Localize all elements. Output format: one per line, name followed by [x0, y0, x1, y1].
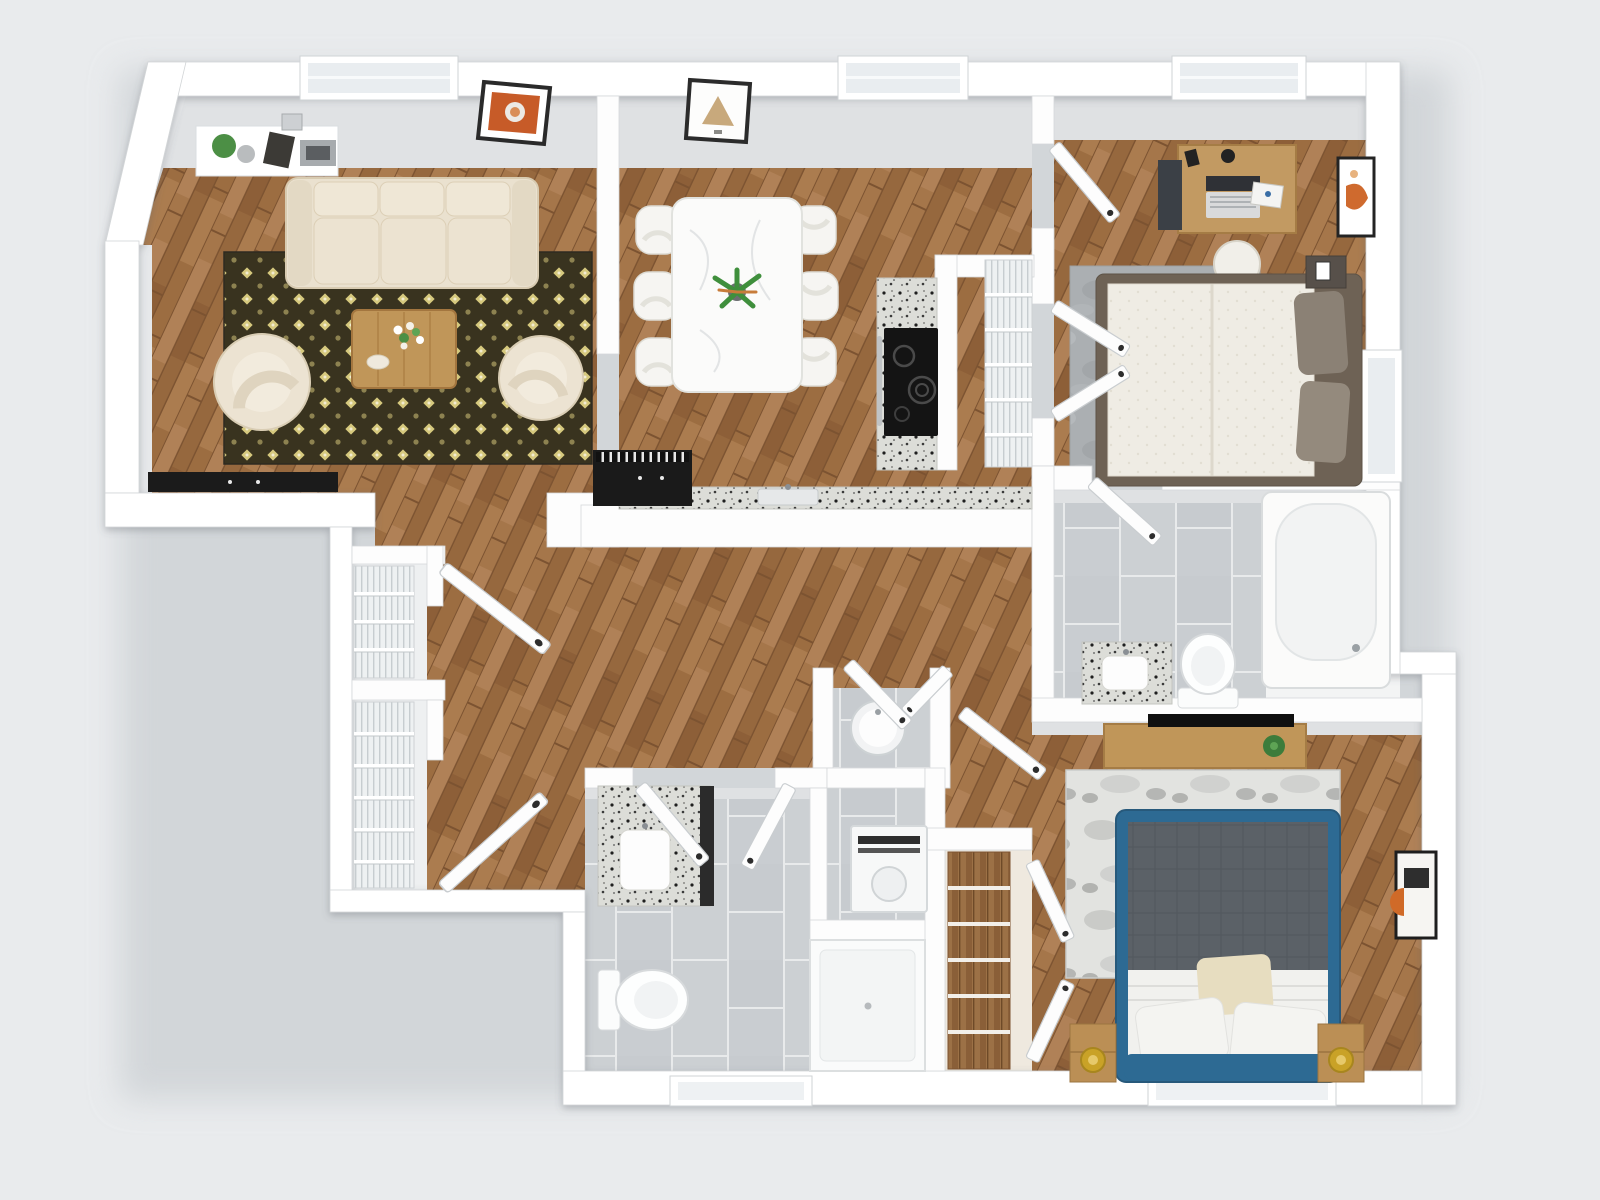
- file-cabinet: [1158, 160, 1182, 230]
- black-sink-cabinet: [593, 450, 692, 506]
- pillow: [1295, 380, 1350, 463]
- hall-closet-shelving: [354, 566, 414, 888]
- walk-in-shower: [810, 940, 925, 1071]
- living-wall-shelf: [196, 126, 338, 176]
- pantry-wire-shelving: [985, 260, 1032, 467]
- wall-closet-divider: [352, 680, 445, 700]
- window-dining-north: [838, 56, 968, 100]
- wall-closet-a-east: [427, 546, 443, 606]
- bathtub: [1262, 492, 1390, 688]
- framed-art-bedroom2: [1390, 852, 1436, 938]
- cooktop: [877, 328, 938, 436]
- tub-faucet: [1352, 644, 1360, 652]
- window-living-north: [300, 56, 458, 100]
- wall-bedroom2-closet-west: [925, 768, 945, 1071]
- wall-bathroom1-west: [1032, 466, 1054, 722]
- wall-closet-b-east: [427, 700, 443, 760]
- bedroom1-north-wall-face: [1054, 96, 1366, 140]
- bathroom2-toilet: [598, 970, 688, 1030]
- desk-speaker: [1221, 149, 1235, 163]
- bedroom2-bed: [1116, 810, 1340, 1082]
- wall-dining-bedroom1-c: [1032, 418, 1054, 466]
- wall-bedroom2-closet-north: [925, 828, 1032, 850]
- floor-plan-canvas: [0, 0, 1600, 1200]
- sofa: [286, 178, 538, 288]
- wall-southwest: [330, 890, 585, 912]
- gold-lamp: [1329, 1048, 1353, 1072]
- closet-b-wire-shelves: [354, 702, 414, 888]
- wall-bathroom2-nook-divider: [810, 788, 827, 940]
- wall-kitchen-cabinet-band: [581, 505, 1032, 547]
- wall-pantry-west: [935, 255, 957, 470]
- shelf-vase: [237, 145, 255, 163]
- bedroom2-closet-shelving: [948, 852, 1010, 1069]
- shower-drain: [865, 1003, 872, 1010]
- framed-art-beige-dining: [686, 80, 750, 142]
- gold-lamp: [1081, 1048, 1105, 1072]
- wall-laundry-nook-north: [827, 768, 925, 788]
- headboard: [1124, 1054, 1332, 1080]
- bedroom1-nightstand: [1306, 256, 1346, 288]
- living-west-wall-face: [139, 245, 152, 493]
- media-console: [148, 472, 338, 492]
- wall-thermostat: [282, 114, 302, 130]
- framed-art-orange-living: [478, 82, 550, 144]
- pillow: [1293, 290, 1349, 375]
- hall-opening-floor: [375, 493, 547, 546]
- photo-frame: [1316, 262, 1330, 280]
- bedroom1-desk: [1158, 145, 1296, 233]
- bathroom1-vanity: [1082, 642, 1172, 704]
- coffee-table: [352, 310, 456, 388]
- framed-art-bedroom1: [1338, 158, 1374, 236]
- wall-living-dining-divider: [597, 96, 619, 354]
- dining-furniture: [634, 198, 838, 392]
- dining-north-wall-face: [619, 96, 1032, 168]
- window-bedroom1-east: [1362, 350, 1402, 482]
- window-bathroom2-south: [670, 1076, 812, 1106]
- wall-bathroom2-north-a: [585, 768, 633, 788]
- wall-dining-bedroom1-b: [1032, 228, 1054, 304]
- floor-plan-rendering: [0, 0, 1600, 1200]
- bedroom1-bed: [1096, 274, 1362, 486]
- washer: [851, 826, 927, 912]
- wall-dining-bedroom1-a: [1032, 96, 1054, 144]
- table-bowl: [367, 355, 389, 369]
- wall-exterior-west: [105, 241, 139, 493]
- dish-rack: [596, 452, 689, 462]
- wall-hall-west: [330, 527, 352, 912]
- oven-handle: [877, 336, 882, 426]
- bathroom1-toilet: [1178, 634, 1238, 708]
- shelf-plant: [212, 134, 236, 158]
- wall-living-south: [105, 493, 375, 527]
- closet-a-wire-shelves: [354, 566, 414, 678]
- window-bedroom1-north: [1172, 56, 1306, 100]
- tv: [1148, 714, 1294, 727]
